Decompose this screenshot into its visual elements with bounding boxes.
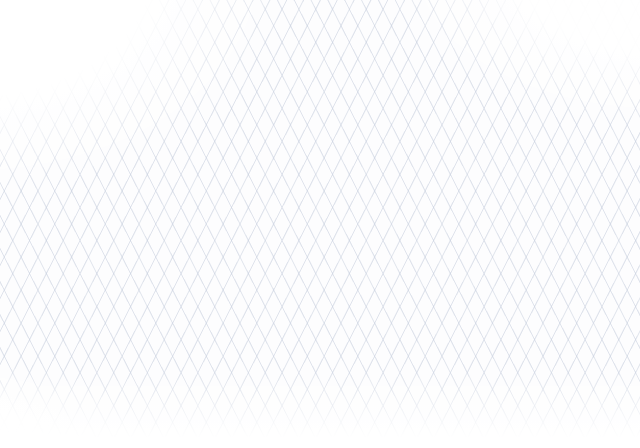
piping-diagram — [0, 0, 640, 448]
drawing-canvas — [0, 0, 640, 448]
